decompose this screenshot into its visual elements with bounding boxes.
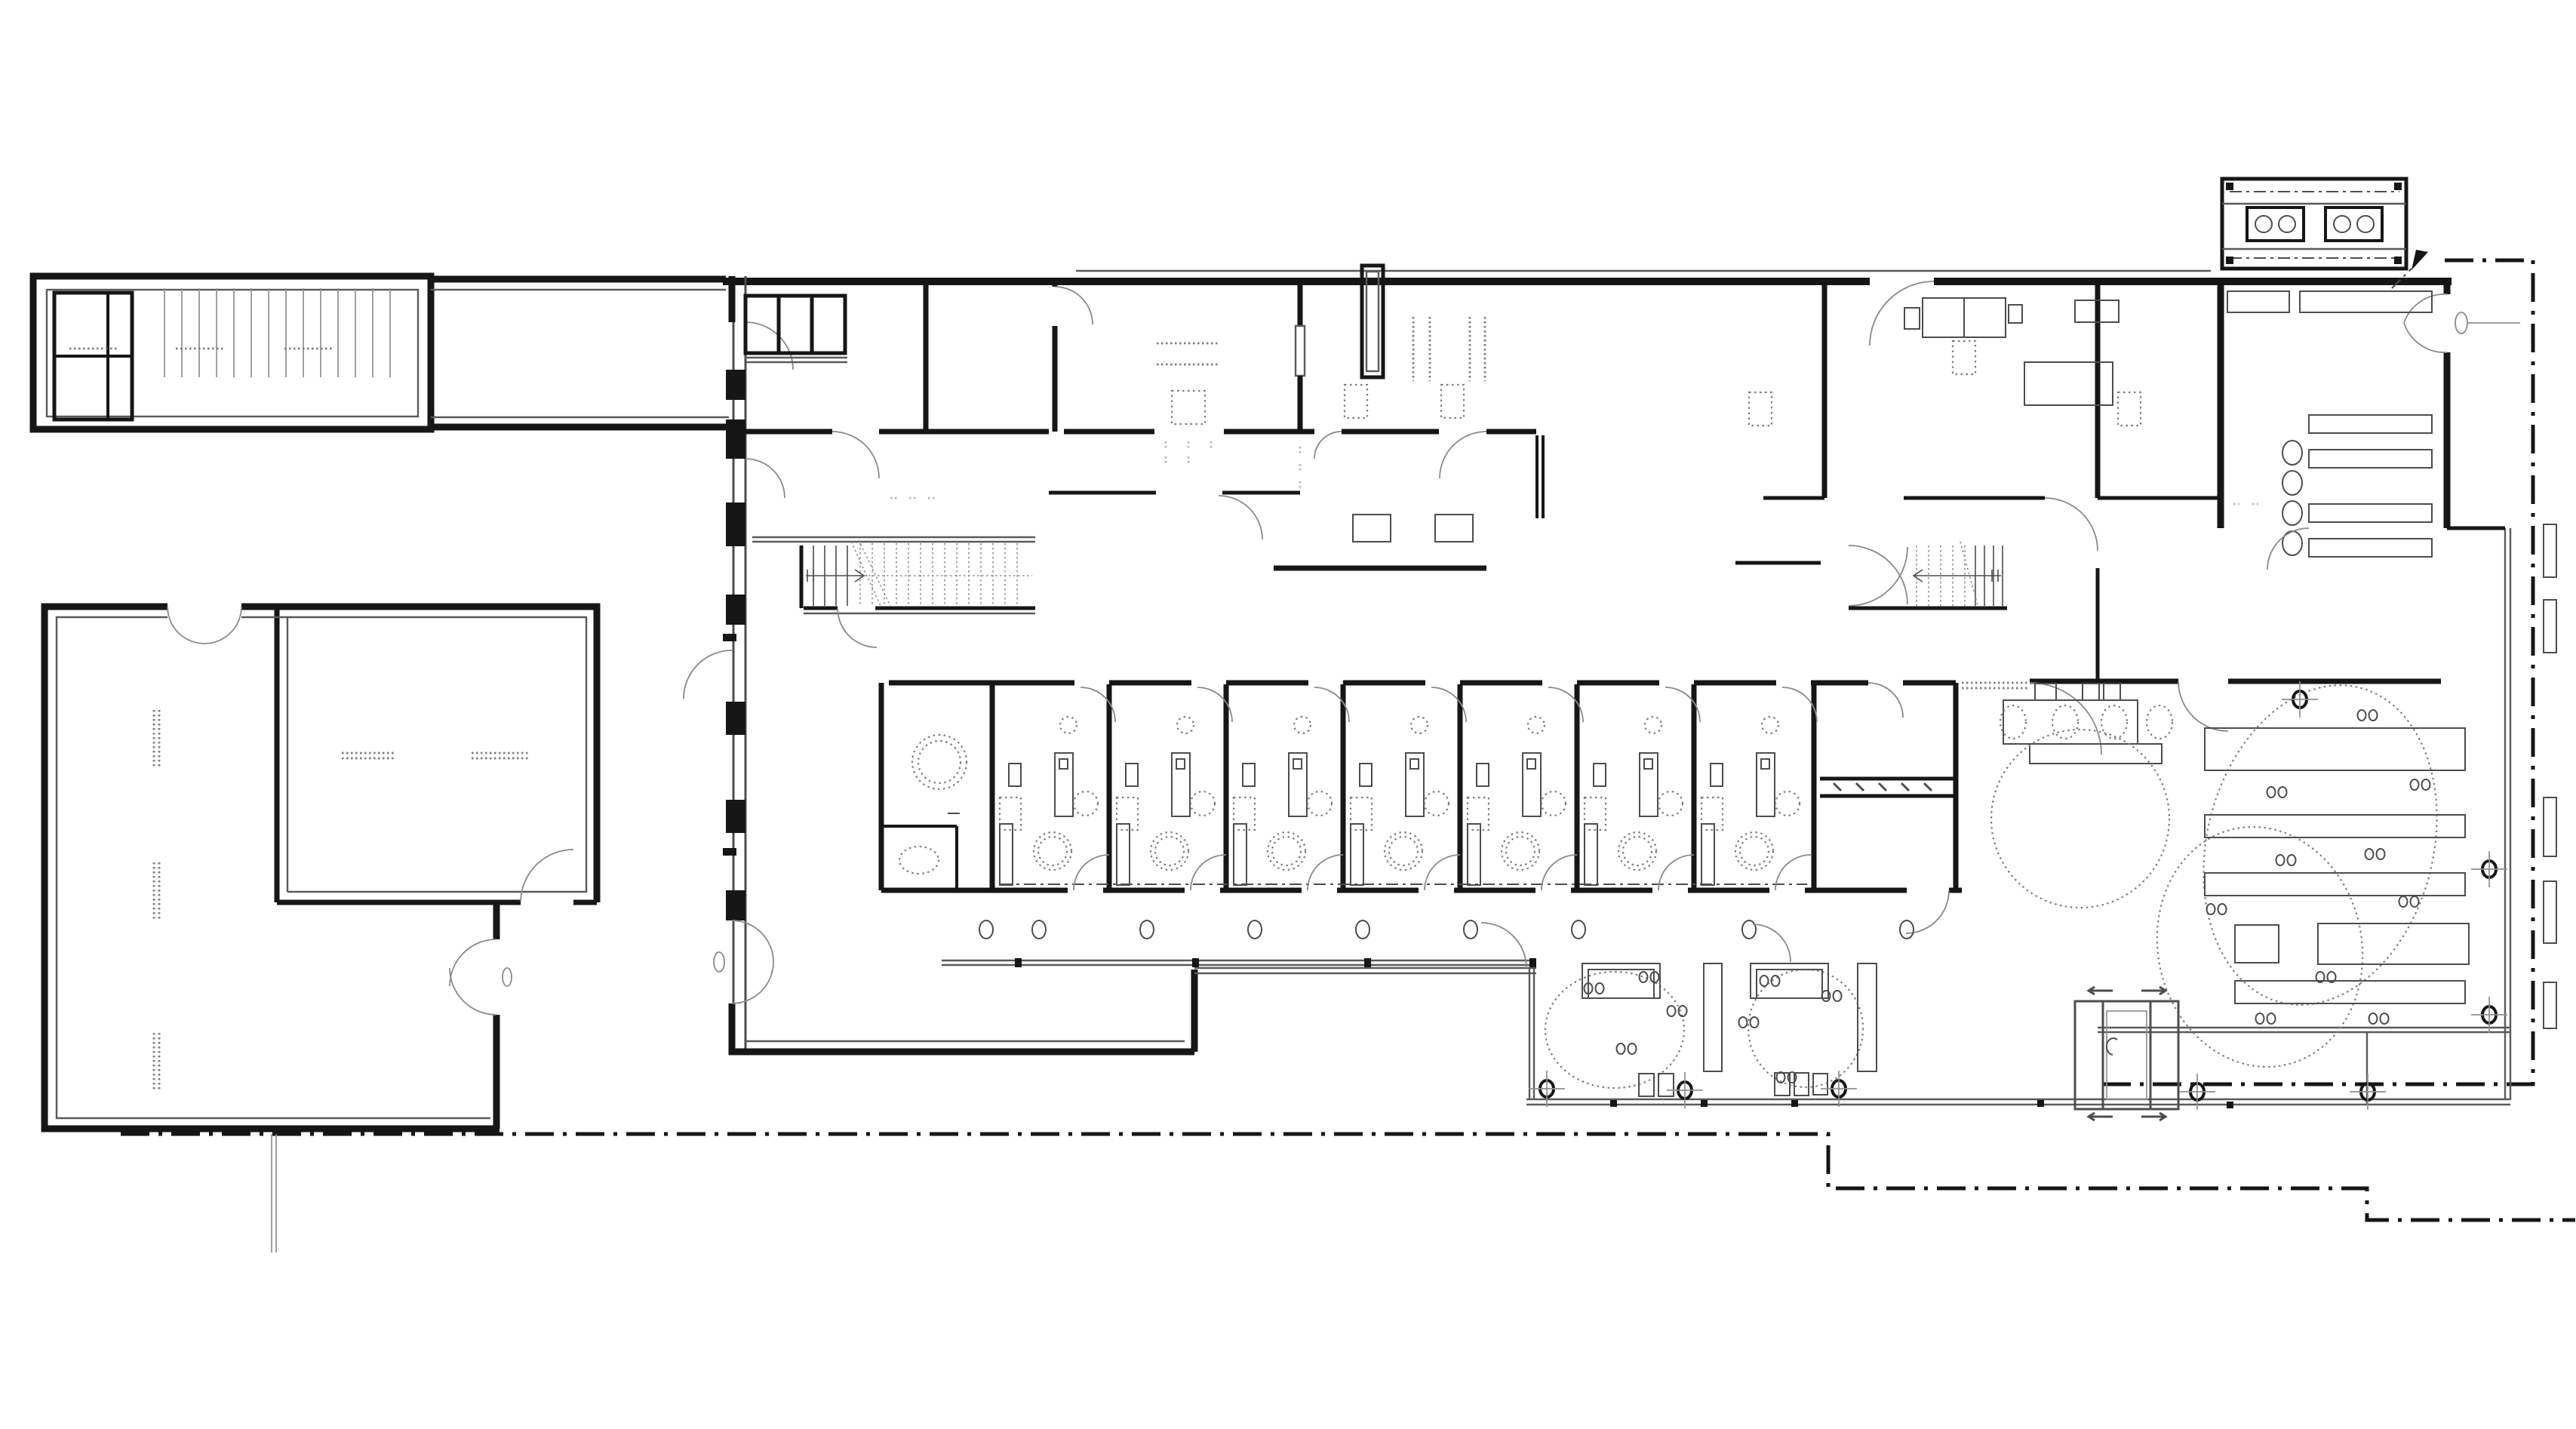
- floor-plan-drawing: Ground-floor architectural plan — spa / …: [0, 0, 2576, 1429]
- floor-plan-page: Ground-floor architectural plan — spa / …: [0, 0, 2576, 1429]
- paper-background: [0, 0, 2576, 1429]
